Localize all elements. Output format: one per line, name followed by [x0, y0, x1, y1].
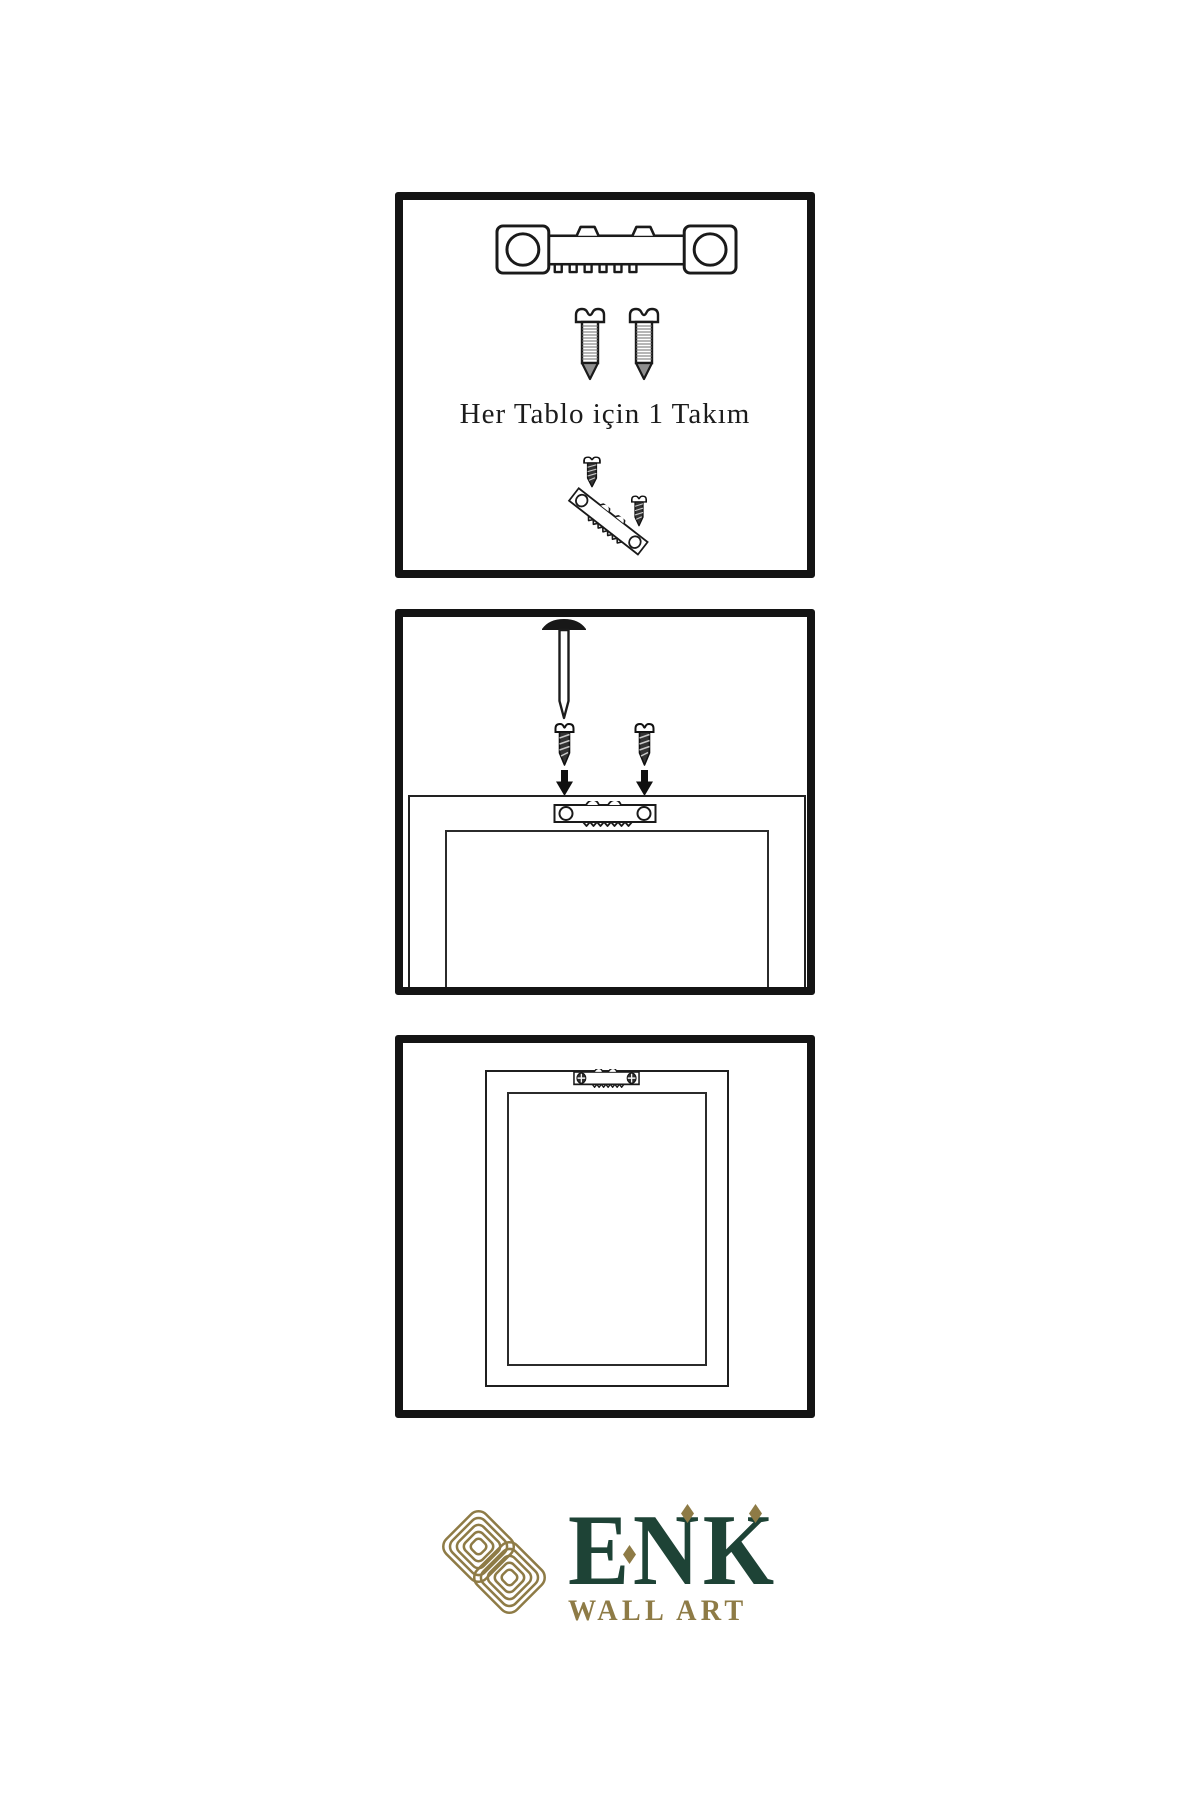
sawtooth-hanger-icon	[495, 223, 738, 276]
step-panel-mounting	[395, 609, 815, 995]
screw-icon	[632, 721, 657, 768]
screw-icon	[581, 455, 603, 489]
screw-icon	[573, 306, 607, 381]
nail-icon	[540, 617, 588, 720]
sawtooth-hanger-icon	[553, 801, 657, 827]
kit-caption: Her Tablo için 1 Takım	[403, 398, 807, 431]
step-panel-hung-frame	[395, 1035, 815, 1418]
screw-icon	[552, 721, 577, 768]
screw-icon	[627, 306, 661, 381]
hung-frame-inner	[507, 1092, 707, 1366]
instruction-sheet: Her Tablo için 1 Takım	[0, 0, 1200, 1800]
arrow-down-icon	[556, 770, 573, 796]
knot-logo-icon	[436, 1500, 552, 1624]
brand-subtitle: WALL ART	[568, 1594, 747, 1628]
brand-name: ENK	[568, 1500, 778, 1602]
frame-back-inner	[445, 830, 769, 995]
sawtooth-hanger-icon	[573, 1069, 640, 1088]
screw-icon	[629, 494, 649, 528]
step-panel-kit-contents: Her Tablo için 1 Takım	[395, 192, 815, 578]
arrow-down-icon	[636, 770, 653, 796]
